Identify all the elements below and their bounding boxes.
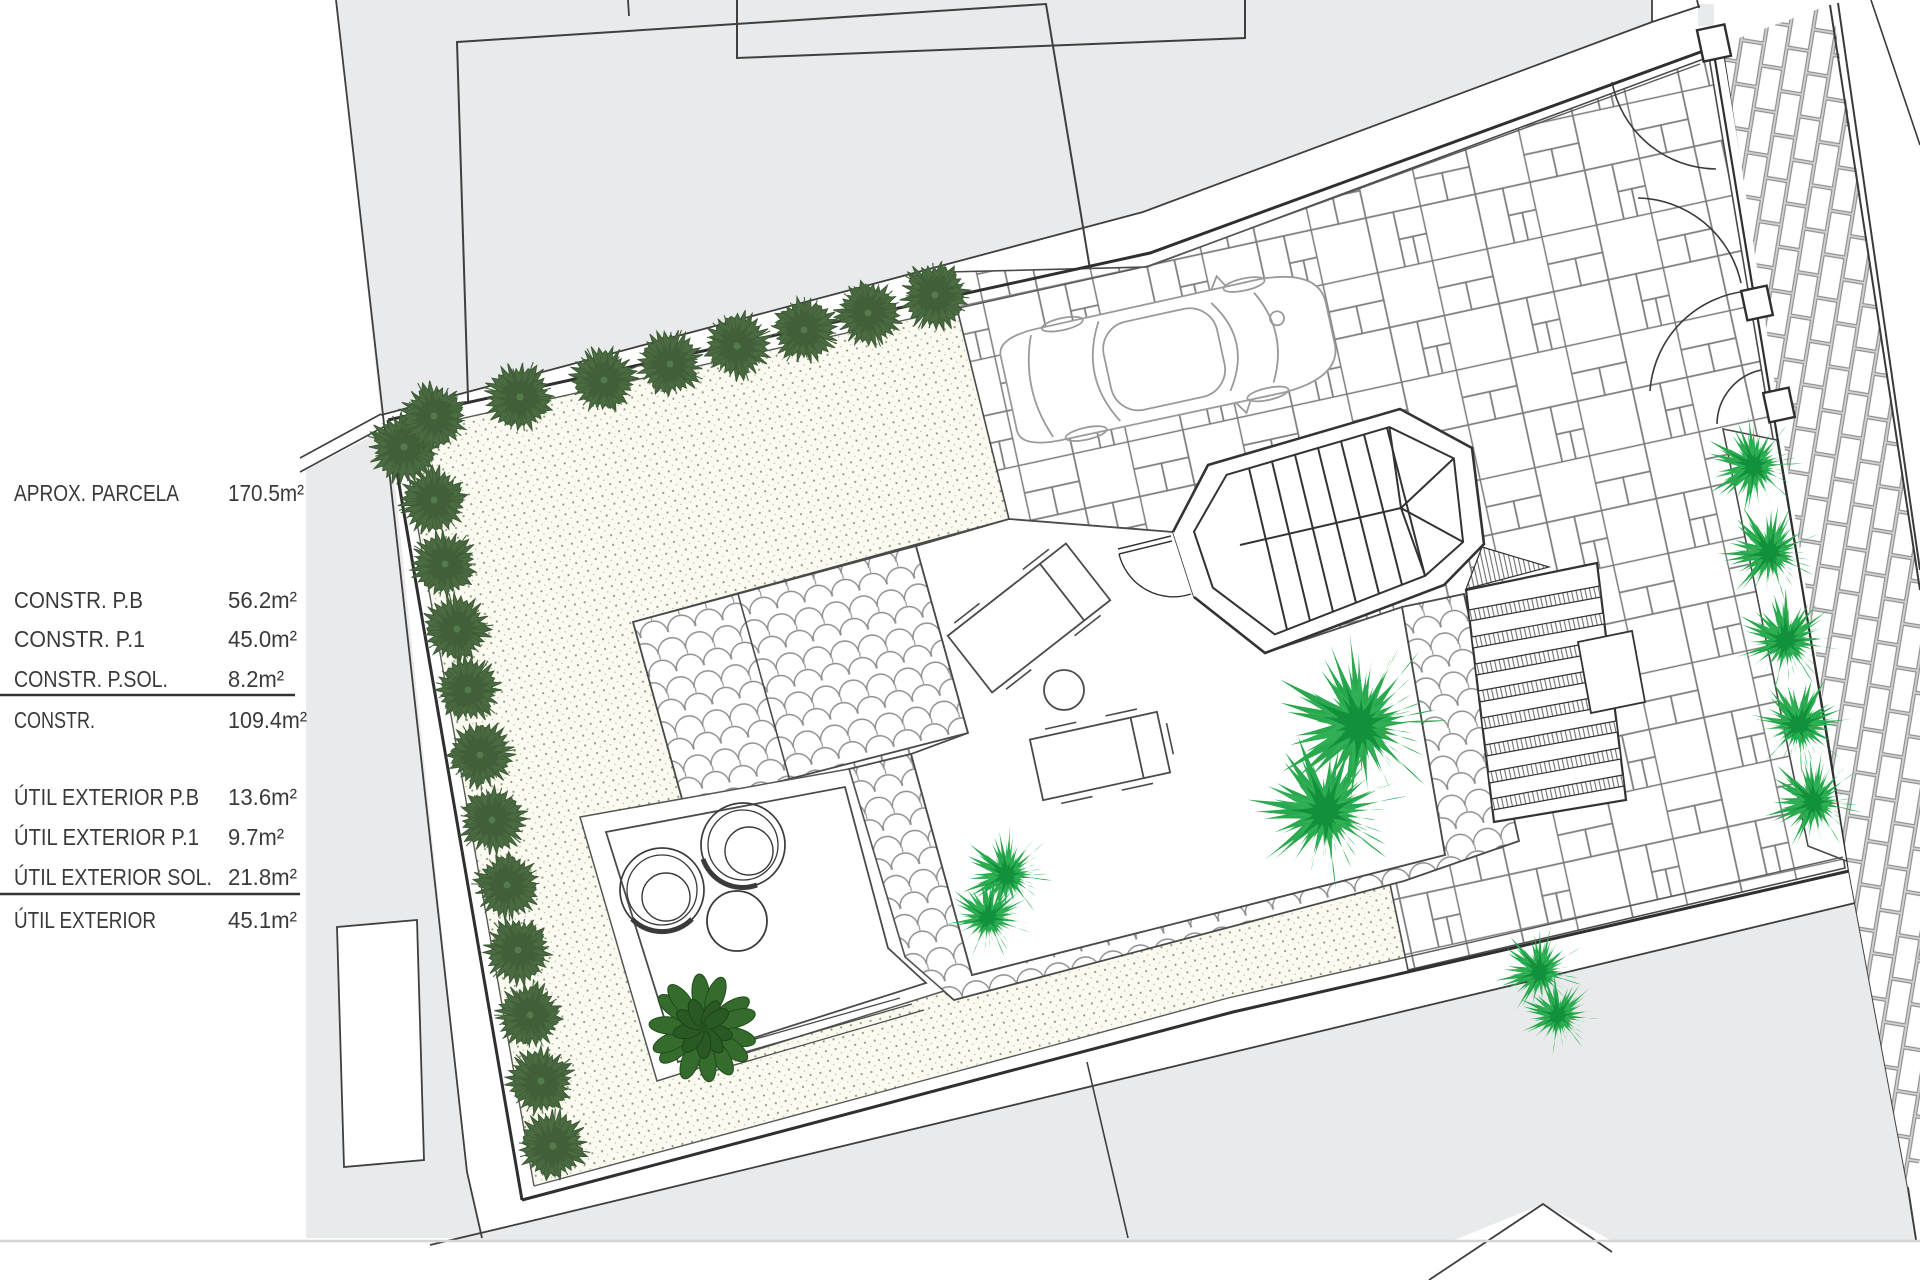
svg-text:21.8m²: 21.8m²	[228, 864, 297, 890]
svg-text:45.1m²: 45.1m²	[228, 907, 297, 933]
svg-text:56.2m²: 56.2m²	[228, 587, 297, 613]
svg-text:45.0m²: 45.0m²	[228, 626, 297, 652]
svg-text:CONSTR. P.B: CONSTR. P.B	[14, 587, 143, 613]
svg-text:ÚTIL EXTERIOR: ÚTIL EXTERIOR	[14, 907, 156, 933]
svg-text:ÚTIL EXTERIOR P.1: ÚTIL EXTERIOR P.1	[14, 824, 199, 850]
svg-text:109.4m²: 109.4m²	[228, 707, 307, 733]
svg-text:APROX. PARCELA: APROX. PARCELA	[14, 480, 180, 506]
svg-text:8.2m²: 8.2m²	[228, 666, 284, 692]
svg-text:CONSTR. P.SOL.: CONSTR. P.SOL.	[14, 666, 168, 692]
svg-text:ÚTIL EXTERIOR P.B: ÚTIL EXTERIOR P.B	[14, 784, 199, 810]
svg-text:CONSTR.: CONSTR.	[14, 707, 95, 733]
svg-text:CONSTR. P.1: CONSTR. P.1	[14, 626, 145, 652]
svg-text:13.6m²: 13.6m²	[228, 784, 297, 810]
svg-text:ÚTIL EXTERIOR SOL.: ÚTIL EXTERIOR SOL.	[14, 864, 212, 890]
svg-text:170.5m²: 170.5m²	[228, 480, 304, 506]
svg-text:9.7m²: 9.7m²	[228, 824, 284, 850]
